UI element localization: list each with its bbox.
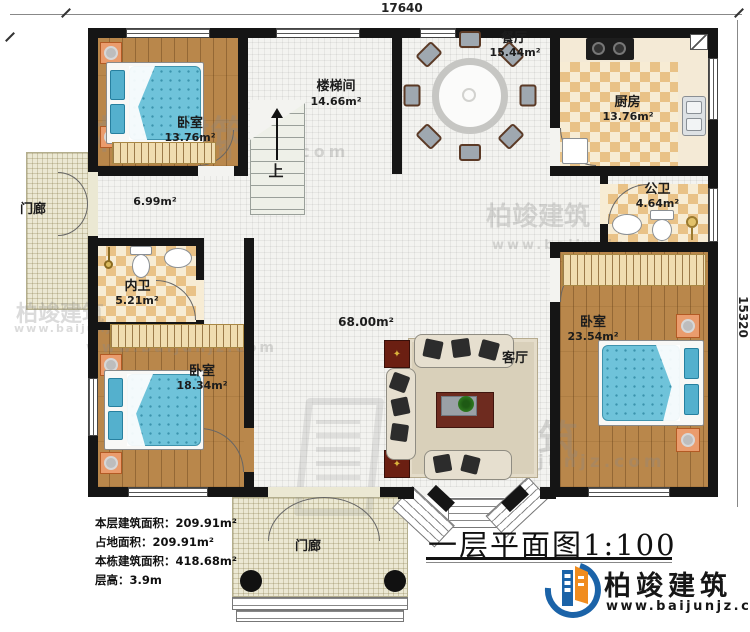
bed-pillow: [684, 384, 699, 415]
brand-url: www.baijunjz.com: [606, 599, 750, 614]
wall: [88, 238, 204, 246]
room-label-bath-public: 公卫: [630, 183, 685, 197]
room-area-bedroom-tl: 13.76m²: [150, 132, 230, 144]
plant: [458, 396, 474, 412]
window: [588, 487, 670, 497]
wardrobe: [110, 324, 244, 348]
window: [708, 188, 718, 242]
wall: [392, 28, 402, 174]
dining-chair: [459, 31, 481, 48]
bed-pillow: [108, 378, 123, 407]
nightstand: [676, 314, 700, 338]
dimension-tick: [5, 32, 15, 42]
dimension-top-value: 17640: [381, 1, 423, 15]
door-gap: [196, 280, 204, 320]
sofa-cushion: [422, 338, 443, 359]
room-area-living: 68.00m²: [330, 316, 402, 329]
room-label-living: 客厅: [486, 352, 544, 366]
bay-wall-stub: [398, 487, 414, 499]
sofa-cushion: [390, 423, 409, 442]
toilet-bowl: [132, 254, 150, 278]
watermark-text: 柏竣建筑: [486, 196, 590, 233]
stove-burner: [613, 42, 626, 55]
water-heater: [686, 216, 698, 228]
bed-pillow: [110, 70, 125, 100]
room-label-porch-left: 门廊: [10, 203, 56, 217]
dining-table-center: [462, 88, 476, 102]
sofa-cushion: [451, 338, 471, 358]
kitchen-cabinet: [562, 138, 588, 164]
room-area-hallway: 6.99m²: [120, 196, 190, 208]
door-gap: [198, 166, 234, 176]
door-gap: [550, 258, 560, 302]
dimension-line-right: [737, 20, 738, 507]
room-area-bath-private: 5.21m²: [103, 295, 171, 307]
bathroom-sink: [612, 214, 642, 235]
dining-chair: [404, 85, 421, 107]
porch-column: [384, 570, 406, 592]
wall: [238, 28, 248, 168]
door-gap: [88, 172, 98, 236]
room-label-bedroom-bl: 卧室: [172, 365, 232, 379]
dining-chair: [520, 85, 537, 107]
door-gap: [600, 184, 608, 224]
wall: [550, 242, 718, 252]
nightstand: [676, 428, 700, 452]
water-heater-stem: [691, 228, 693, 240]
room-label-bedroom-r: 卧室: [563, 316, 623, 330]
floor-plan: 17640 15320 柏竣建筑 www.baijunjz.com 柏竣建筑 w…: [0, 0, 750, 632]
bed-pillow: [108, 411, 123, 440]
sink-basin: [686, 101, 702, 114]
room-area-bath-public: 4.64m²: [625, 198, 690, 210]
room-area-kitchen: 13.76m²: [593, 111, 663, 123]
tv-cabinet: ✦: [384, 340, 410, 368]
dining-chair: [459, 144, 481, 161]
flue: [690, 34, 708, 50]
bay-wall-stub: [540, 487, 556, 499]
stairs-up-label: 上: [262, 163, 290, 180]
room-label-dining: 餐厅: [488, 32, 540, 46]
door-gap: [244, 428, 254, 472]
room-area-bedroom-r: 23.54m²: [553, 331, 633, 343]
room-area-bedroom-bl: 18.34m²: [164, 380, 240, 392]
info-line: 层高：3.9m: [95, 571, 285, 590]
bed-pillow: [110, 104, 125, 134]
bathroom-sink: [164, 248, 192, 268]
brand-name: 柏竣建筑: [604, 564, 732, 603]
dimension-tick: [734, 8, 744, 18]
door-gap: [550, 128, 560, 166]
window: [128, 487, 208, 497]
brand-logo-icon: [540, 558, 602, 622]
dimension-line-top: [10, 14, 742, 15]
room-label-bath-private: 内卫: [110, 280, 165, 294]
toilet-bowl: [652, 219, 672, 241]
sofa-cushion: [390, 396, 410, 416]
wardrobe: [112, 142, 216, 164]
window: [708, 58, 718, 120]
info-line: 本栋建筑面积：418.68m²: [95, 552, 285, 571]
room-label-bedroom-tl: 卧室: [160, 117, 220, 131]
info-line: 本层建筑面积：209.91m²: [95, 514, 285, 533]
window: [126, 28, 210, 38]
sofa-cushion: [433, 454, 453, 474]
dimension-right-value: 15320: [736, 296, 750, 338]
room-area-dining: 15.44m²: [480, 47, 550, 59]
wall: [550, 166, 718, 176]
window: [276, 28, 360, 38]
room-label-porch-bottom: 门廊: [278, 540, 338, 554]
porch-steps: [232, 597, 408, 610]
room-label-kitchen: 厨房: [600, 96, 655, 110]
window: [88, 378, 98, 436]
watermark-logo-glyph: [316, 420, 360, 494]
door-gap: [268, 487, 380, 497]
nightstand: [100, 452, 122, 474]
info-block: 本层建筑面积：209.91m² 占地面积：209.91m² 本栋建筑面积：418…: [95, 514, 285, 590]
bed-pillow: [684, 348, 699, 379]
info-line: 占地面积：209.91m²: [95, 533, 285, 552]
stove-burner: [592, 42, 605, 55]
stair-arrow-head: [271, 108, 283, 118]
room-area-stairwell: 14.66m²: [300, 96, 372, 108]
window: [420, 28, 456, 38]
nightstand: [100, 42, 122, 64]
sink-basin: [686, 118, 702, 131]
porch-steps: [236, 610, 404, 622]
shower-hose: [108, 247, 110, 261]
dimension-tick: [61, 8, 71, 18]
wardrobe: [562, 254, 706, 286]
shower-head: [104, 260, 113, 269]
room-label-stairwell: 楼梯间: [300, 80, 372, 94]
stair-direction-arrow: [276, 116, 278, 160]
